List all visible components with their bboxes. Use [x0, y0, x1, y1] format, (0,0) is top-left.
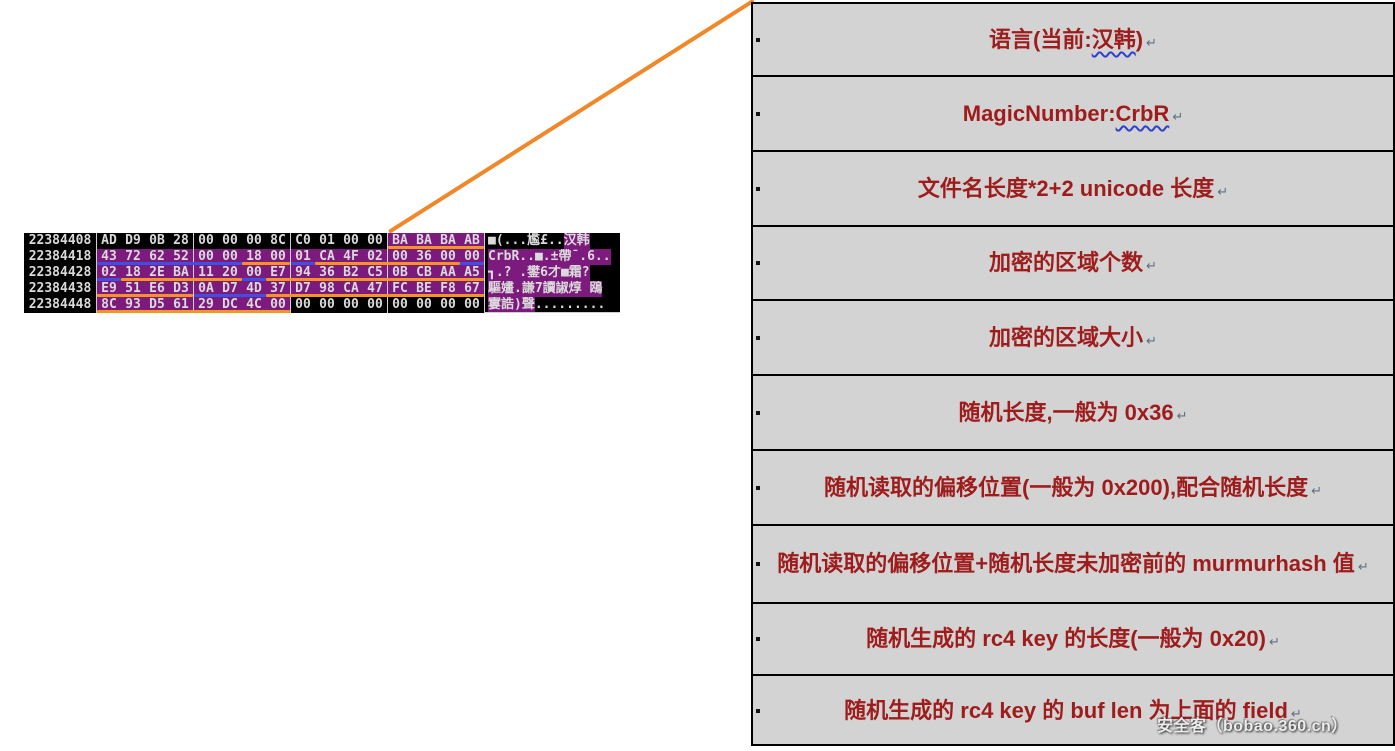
hex-byte: 28 [169, 233, 193, 249]
hex-byte: D9 [121, 233, 145, 249]
table-row: 随机长度,一般为 0x36↵ [753, 376, 1393, 451]
hex-byte: 00 [412, 297, 436, 313]
paragraph-mark-icon: ↵ [1172, 109, 1183, 124]
blue-underline-mark [291, 262, 315, 265]
orange-underline-mark [266, 294, 484, 297]
spellcheck-wavy-text: CrbR [1116, 101, 1170, 126]
hex-ascii-column: 寠誥)聲......... [485, 297, 620, 313]
table-row: 加密的区域大小↵ [753, 301, 1393, 376]
paragraph-mark-icon: ↵ [1269, 634, 1280, 649]
table-cell-text: 随机生成的 rc4 key 的长度(一般为 0x20)↵ [860, 625, 1286, 653]
cell-text: 随机读取的偏移位置(一般为 0x200),配合随机长度 [824, 475, 1308, 500]
cell-marker-dot [756, 562, 760, 566]
cell-marker-dot [756, 261, 760, 265]
orange-underline-mark [97, 294, 193, 297]
table-row: 随机生成的 rc4 key 的长度(一般为 0x20)↵ [753, 604, 1393, 676]
hex-byte: 00 [460, 297, 484, 313]
table-cell-text: 随机读取的偏移位置(一般为 0x200),配合随机长度↵ [818, 474, 1328, 502]
hex-address: 22384408 [24, 233, 96, 249]
hex-byte: 00 [363, 233, 387, 249]
paragraph-mark-icon: ↵ [1146, 258, 1157, 273]
cell-marker-dot [756, 411, 760, 415]
hex-address: 22384428 [24, 265, 96, 281]
paragraph-mark-icon: ↵ [1146, 333, 1157, 348]
hex-row: 2238442802182EBA112000E79436B2C50BCBAAA5… [24, 265, 620, 281]
hex-byte: 00 [218, 233, 242, 249]
hex-ascii-text: ┓.? .鐢6才■霜? [488, 265, 590, 281]
blue-underline-mark [97, 262, 242, 265]
hex-address: 22384448 [24, 297, 96, 313]
hex-byte: 01 [315, 233, 339, 249]
hex-ascii-text: 汉韩 [564, 233, 590, 249]
watermark-text: 安全客（bobao.360.cn） [1157, 712, 1395, 736]
hex-ascii-column: CrbR..■.±帶¯.6.. [485, 249, 620, 265]
cell-text: 随机长度,一般为 0x36 [958, 400, 1173, 425]
hex-byte: 00 [339, 233, 363, 249]
cell-marker-dot [756, 112, 760, 116]
hex-row: 22384418437262520000180001CA4F0200360000… [24, 249, 620, 265]
orange-underline-mark [121, 278, 242, 281]
table-row: 语言(当前:汉韩)↵ [753, 4, 1393, 77]
cell-text: 随机读取的偏移位置+随机长度未加密前的 murmurhash 值 [777, 551, 1355, 576]
hex-row: 223844488C93D56129DC4C000000000000000000… [24, 297, 620, 313]
blue-underline-mark [97, 278, 121, 281]
hex-byte: AD [97, 233, 121, 249]
table-row: 随机读取的偏移位置+随机长度未加密前的 murmurhash 值↵ [753, 526, 1393, 604]
hex-byte: 00 [193, 233, 218, 249]
figure-canvas: 22384408ADD90B280000008CC0010000BABABAAB… [0, 0, 1395, 751]
paragraph-mark-icon: ↵ [1217, 184, 1228, 199]
hex-byte: 00 [315, 297, 339, 313]
cell-marker-dot [756, 637, 760, 641]
hex-byte: 00 [242, 233, 266, 249]
hex-address: 22384418 [24, 249, 96, 265]
orange-underline-mark [315, 262, 460, 265]
cell-text: 随机生成的 rc4 key 的长度(一般为 0x20) [866, 626, 1266, 651]
hex-ascii-text: ■(...尷£.. [488, 233, 564, 249]
cell-text: ) [1136, 27, 1143, 52]
cell-marker-dot [756, 336, 760, 340]
orange-underline-mark [97, 310, 290, 313]
hex-byte: C0 [290, 233, 315, 249]
paragraph-mark-icon: ↵ [1311, 483, 1322, 498]
paragraph-mark-icon: ↵ [1146, 35, 1157, 50]
hex-editor-panel: 22384408ADD90B280000008CC0010000BABABAAB… [24, 233, 620, 313]
hex-row: 22384438E951E6D30AD74D37D798CA47FCBEF867… [24, 281, 620, 297]
hex-ascii-column: ■(...尷£..汉韩 [485, 233, 620, 249]
table-cell-text: 随机读取的偏移位置+随机长度未加密前的 murmurhash 值↵ [771, 550, 1374, 578]
hex-byte: 00 [339, 297, 363, 313]
cell-text: MagicNumber: [963, 101, 1116, 126]
blue-underline-mark [194, 294, 266, 297]
table-cell-text: 语言(当前:汉韩)↵ [983, 26, 1163, 54]
hex-ascii-text: CrbR..■.±帶¯.6.. [488, 249, 611, 265]
hex-address: 22384438 [24, 281, 96, 297]
paragraph-mark-icon: ↵ [1177, 408, 1188, 423]
hex-ascii-text: ......... [535, 297, 605, 313]
orange-underline-mark [388, 246, 484, 249]
hex-byte: 00 [436, 297, 460, 313]
hex-byte: 8C [266, 233, 290, 249]
cell-text: 加密的区域个数 [989, 250, 1143, 275]
connector-line [388, 0, 755, 234]
table-row: 加密的区域个数↵ [753, 227, 1393, 301]
hex-ascii-column: 驅嫿.謙7讀諔焞 鴎 [485, 281, 620, 297]
table-row: 随机读取的偏移位置(一般为 0x200),配合随机长度↵ [753, 451, 1393, 526]
annotation-table: 语言(当前:汉韩)↵MagicNumber:CrbR↵文件名长度*2+2 uni… [751, 2, 1395, 746]
hex-ascii-column: ┓.? .鐢6才■霜? [485, 265, 620, 281]
hex-byte: 00 [363, 297, 387, 313]
blue-underline-mark [242, 278, 266, 281]
table-cell-text: 文件名长度*2+2 unicode 长度↵ [912, 175, 1234, 203]
table-row: 文件名长度*2+2 unicode 长度↵ [753, 152, 1393, 227]
cell-text: 语言(当前: [989, 27, 1092, 52]
orange-underline-mark [266, 278, 484, 281]
hex-ascii-text: 驅嫿.謙7讀諔焞 鴎 [488, 281, 602, 297]
table-cell-text: 随机长度,一般为 0x36↵ [952, 399, 1193, 427]
spellcheck-wavy-text: 汉韩 [1092, 27, 1136, 52]
cell-marker-dot [756, 38, 760, 42]
paragraph-mark-icon: ↵ [1358, 559, 1369, 574]
table-cell-text: 加密的区域大小↵ [983, 324, 1163, 352]
table-cell-text: 加密的区域个数↵ [983, 249, 1163, 277]
cell-marker-dot [756, 486, 760, 490]
table-cell-text: MagicNumber:CrbR↵ [957, 100, 1189, 128]
cell-text: 加密的区域大小 [989, 325, 1143, 350]
hex-byte: 00 [290, 297, 315, 313]
hex-byte: 0B [145, 233, 169, 249]
cell-marker-dot [756, 187, 760, 191]
cell-marker-dot [756, 709, 760, 713]
hex-row: 22384408ADD90B280000008CC0010000BABABAAB… [24, 233, 620, 249]
cell-text: 文件名长度*2+2 unicode 长度 [918, 176, 1214, 201]
table-row: MagicNumber:CrbR↵ [753, 77, 1393, 152]
blue-underline-mark [460, 262, 484, 265]
hex-ascii-text: 寠誥)聲 [488, 297, 535, 313]
orange-underline-mark [242, 262, 290, 265]
hex-byte: 00 [387, 297, 412, 313]
